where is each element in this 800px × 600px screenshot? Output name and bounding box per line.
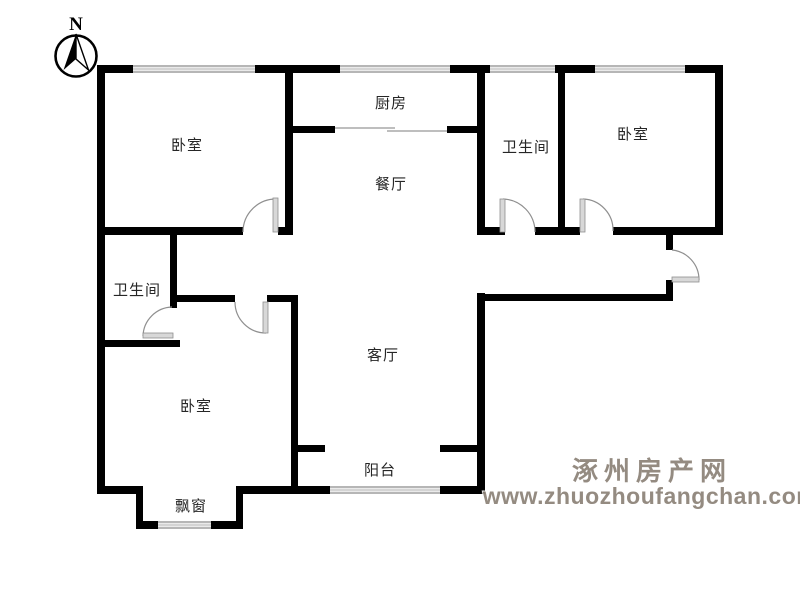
door-leaf	[580, 199, 585, 232]
window-bathroom-right	[490, 65, 555, 73]
door-leaf	[143, 333, 173, 338]
floor-plan-page: N 卧室 厨房 餐厅 卫生间 卧室 卫生间 卧室 客厅 阳台 飘窗 涿州房产网 …	[0, 0, 800, 600]
door-leaf	[672, 277, 699, 282]
room-label-bedroom-top-left: 卧室	[171, 137, 203, 154]
door-bedroom-top-right	[580, 199, 613, 232]
door-bedroom-top-left	[243, 198, 278, 232]
wall-segment	[291, 445, 325, 452]
door-leaf	[500, 199, 505, 232]
watermark: 涿州房产网 www.zhuozhoufangchan.com	[482, 456, 800, 509]
watermark-site-url: www.zhuozhoufangchan.com	[482, 483, 800, 509]
wall-left	[97, 65, 105, 494]
door-leaf	[263, 302, 268, 333]
door-bedroom-bottom-left	[235, 302, 268, 333]
room-label-bedroom-bottom-left: 卧室	[180, 398, 212, 415]
wall-segment	[97, 340, 180, 347]
room-label-bedroom-top-right: 卧室	[617, 126, 649, 143]
wall-segment	[97, 227, 243, 235]
room-label-kitchen: 厨房	[375, 95, 407, 112]
wall-segment	[666, 233, 673, 250]
door-swing-arc	[503, 199, 535, 232]
door-leaf	[273, 198, 278, 232]
window-bedroom-top-right	[595, 65, 685, 73]
door-swing-arc	[143, 307, 172, 336]
wall-segment	[477, 293, 485, 494]
compass-icon: N	[56, 14, 97, 77]
sliding-door-kitchen	[335, 126, 447, 133]
room-label-bathroom-right: 卫生间	[502, 139, 550, 156]
sliding-door-track	[335, 126, 447, 133]
door-swing-arc	[672, 250, 699, 280]
door-entry	[672, 250, 699, 282]
wall-segment	[440, 445, 485, 452]
wall-segment	[666, 280, 673, 297]
wall-segment	[285, 65, 293, 235]
wall-segment	[291, 295, 298, 486]
floor-plan-canvas: N 卧室 厨房 餐厅 卫生间 卧室 卫生间 卧室 客厅 阳台 飘窗 涿州房产网 …	[0, 0, 800, 600]
doors	[143, 198, 699, 338]
room-label-balcony: 阳台	[364, 462, 396, 479]
door-bathroom-left	[143, 307, 173, 338]
window-balcony	[330, 486, 440, 494]
wall-segment	[478, 294, 673, 301]
door-swing-arc	[583, 199, 613, 231]
wall-right	[715, 65, 723, 233]
window-kitchen	[340, 65, 450, 73]
room-label-living: 客厅	[367, 347, 399, 364]
compass-north-label: N	[69, 14, 83, 35]
door-bathroom-right	[500, 199, 535, 232]
wall-segment	[535, 227, 580, 235]
wall-segment	[170, 235, 177, 308]
room-label-bay-window: 飘窗	[175, 497, 207, 515]
window-bedroom-top-left	[133, 65, 255, 73]
wall-segment	[293, 126, 335, 133]
wall-segment	[558, 65, 565, 235]
door-swing-arc	[243, 199, 276, 232]
door-swing-arc	[235, 302, 266, 333]
room-labels: 卧室 厨房 餐厅 卫生间 卧室 卫生间 卧室 客厅 阳台 飘窗	[113, 95, 649, 515]
wall-segment	[477, 65, 485, 235]
watermark-site-name: 涿州房产网	[572, 456, 732, 486]
wall-segment	[177, 295, 235, 302]
room-label-dining: 餐厅	[375, 176, 407, 193]
window-bay	[158, 521, 211, 529]
room-label-bathroom-left: 卫生间	[113, 282, 161, 299]
